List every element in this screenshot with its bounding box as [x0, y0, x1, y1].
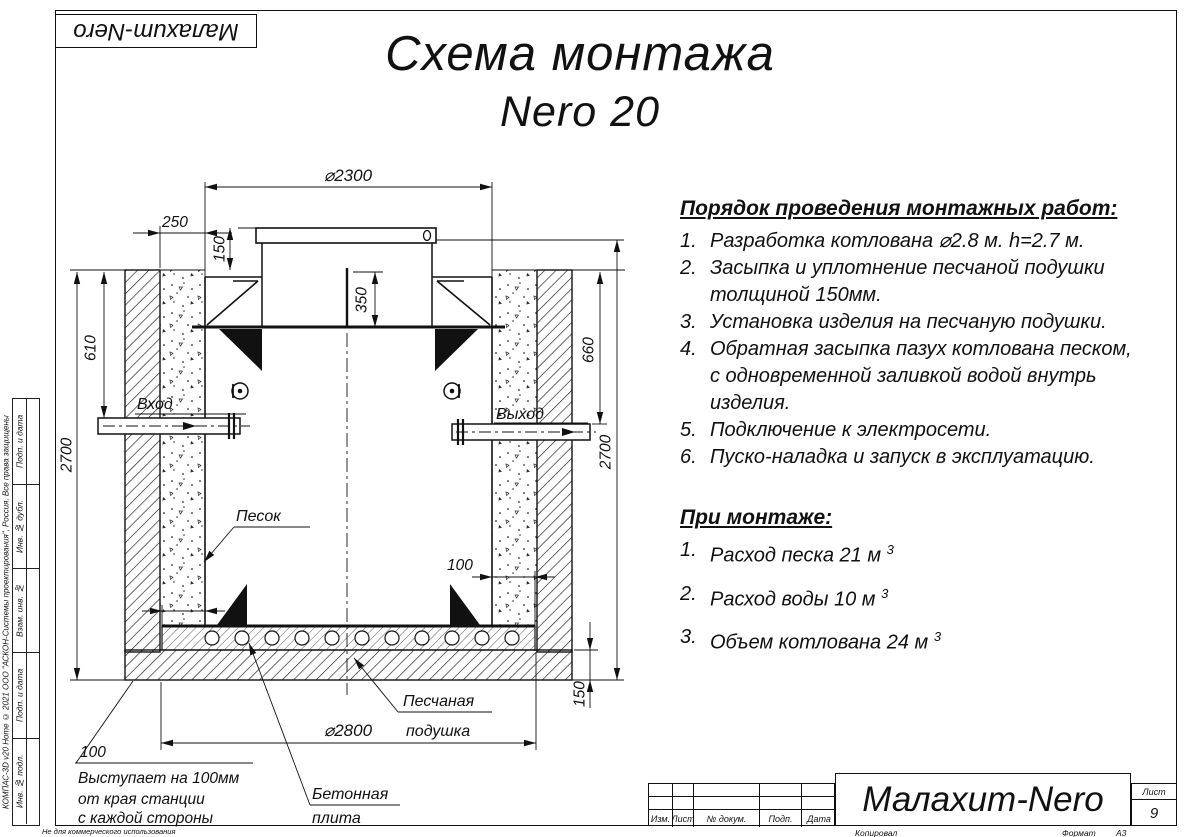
stamp-cell-label: Инв. № дубл.: [13, 485, 26, 568]
dim-350: 350: [353, 287, 370, 313]
item-number: 5.: [680, 417, 697, 444]
format-label: Формат: [1062, 828, 1096, 837]
dim-250: 250: [161, 214, 188, 231]
sheet-label: Лист: [1132, 784, 1176, 800]
item-text: Подключение к электросети.: [710, 419, 991, 441]
instruction-item: 2.Засыпка и уплотнение песчаной подушки …: [680, 255, 1172, 309]
instructions-list: 1.Разработка котлована ⌀2.8 м. h=2.7 м. …: [680, 228, 1172, 471]
tb-header-podp: Подп.: [760, 809, 802, 827]
instruction-item: 5.Подключение к электросети.: [680, 417, 1172, 444]
dim-2700-right: 2700: [597, 434, 614, 470]
stamp-cell-label: Подп. и дата: [13, 653, 26, 738]
stamp-cell-label: Взам. инв. №: [13, 569, 26, 652]
copyright-vertical: КОМПАС-3D v20 Home © 2021 ООО "АСКОН-Сис…: [0, 392, 12, 832]
overhang-note-1: Выступает на 100мм: [78, 770, 240, 787]
copied-label: Копировал: [855, 828, 897, 837]
item-number: 4.: [680, 336, 697, 363]
concrete-plate-label-2: плита: [312, 810, 361, 827]
item-number: 3.: [680, 309, 697, 336]
item-number: 3.: [680, 624, 697, 650]
montage-item: 3.Объем котлована 24 м 3: [680, 624, 1172, 656]
dim-2300: ⌀2300: [324, 166, 373, 185]
item-number: 1.: [680, 537, 697, 563]
tb-header-docnum: № докум.: [694, 809, 760, 827]
dim-150-lid: 150: [211, 236, 228, 262]
sand-backfill: [160, 270, 537, 626]
sand-cushion-label-2: подушка: [406, 723, 470, 740]
format-value: A3: [1116, 828, 1126, 837]
item-number: 6.: [680, 444, 697, 471]
item-number: 2.: [680, 581, 697, 607]
stamp-cell: Инв. № дубл.: [13, 485, 39, 569]
item-text: Объем котлована 24 м: [710, 632, 928, 654]
page-title: Схема монтажа: [330, 26, 830, 82]
overhang-note-2: от края станции: [78, 791, 205, 808]
instruction-item: 3.Установка изделия на песчаную подушки.: [680, 309, 1172, 336]
sand-label: Песок: [236, 508, 282, 525]
overhang-note-3: с каждой стороны: [78, 810, 214, 827]
sheet-number: 9: [1132, 800, 1176, 826]
item-text: Пуско-наладка и запуск в эксплуатацию.: [710, 446, 1095, 468]
stamp-cell: Инв. № подл.: [13, 739, 39, 824]
outlet-label: Выход: [496, 406, 544, 423]
dim-660: 660: [580, 337, 597, 363]
stamp-cell-label-col: Подп. и дата: [13, 653, 27, 738]
top-gussets: [207, 281, 490, 325]
montage-list: 1.Расход песка 21 м 3 2.Расход воды 10 м…: [680, 537, 1172, 656]
page-subtitle: Nero 20: [330, 88, 830, 137]
item-superscript: 3: [881, 586, 888, 601]
montage-heading: При монтаже:: [680, 506, 1172, 530]
titleblock-product-name: Малахит-Nero: [835, 773, 1131, 826]
instruction-item: 6.Пуско-наладка и запуск в эксплуатацию.: [680, 444, 1172, 471]
stamp-cell: Взам. инв. №: [13, 569, 39, 653]
item-text: Расход воды 10 м: [710, 588, 876, 610]
item-number: 2.: [680, 255, 697, 282]
stamp-cell-label: Подп. и дата: [13, 399, 26, 484]
item-superscript: 3: [887, 542, 894, 557]
item-text: Разработка котлована ⌀2.8 м. h=2.7 м.: [710, 230, 1084, 252]
stamp-cell: Подп. и дата: [13, 653, 39, 739]
stamp-cell: Подп. и дата: [13, 399, 39, 485]
stamp-cell-label-col: Инв. № дубл.: [13, 485, 27, 568]
concrete-plate-label-1: Бетонная: [312, 786, 389, 803]
tb-header-data: Дата: [802, 809, 836, 827]
instruction-item: 4.Обратная засыпка пазух котлована песко…: [680, 336, 1172, 417]
instructions-heading: Порядок проведения монтажных работ:: [680, 197, 1172, 221]
item-number: 1.: [680, 228, 697, 255]
stamp-cell-label-col: Взам. инв. №: [13, 569, 27, 652]
item-text: Обратная засыпка пазух котлована песком,…: [710, 338, 1132, 414]
montage-item: 1.Расход песка 21 м 3: [680, 537, 1172, 569]
montage-item: 2.Расход воды 10 м 3: [680, 581, 1172, 613]
sand-cushion: [125, 650, 572, 680]
drawing-sheet: ⌀2300 250 150 350 610 2700 660 2700 ⌀280…: [0, 0, 1185, 837]
item-text: Установка изделия на песчаную подушки.: [710, 311, 1107, 333]
tank-lid: [256, 228, 436, 243]
dim-610: 610: [82, 335, 99, 361]
item-text: Расход песка 21 м: [710, 545, 881, 567]
instruction-item: 1.Разработка котлована ⌀2.8 м. h=2.7 м.: [680, 228, 1172, 255]
instructions-block: Порядок проведения монтажных работ: 1.Ра…: [680, 197, 1172, 471]
non-commercial-note: Не для коммерческого использования: [42, 827, 175, 836]
overhang-value: 100: [80, 744, 106, 761]
item-superscript: 3: [934, 629, 941, 644]
titleblock-revision-table: Изм. Лист № докум. Подп. Дата: [648, 783, 835, 826]
inlet-label: Вход: [137, 396, 173, 413]
dim-100-right: 100: [447, 557, 473, 574]
stamp-cell-label: Инв. № подл.: [13, 739, 26, 824]
stamp-cell-label-col: Инв. № подл.: [13, 739, 27, 824]
support-brackets: [217, 329, 480, 625]
brand-stamp-text: Малахит-Nero: [56, 15, 256, 47]
left-stamp-strip: Подп. и дата Инв. № дубл. Взам. инв. № П…: [12, 398, 40, 826]
tb-header-list: Лист: [673, 809, 694, 827]
montage-block: При монтаже: 1.Расход песка 21 м 3 2.Рас…: [680, 506, 1172, 668]
item-text: Засыпка и уплотнение песчаной подушки то…: [710, 257, 1105, 306]
dim-150-cushion: 150: [571, 681, 588, 707]
sand-cushion-label-1: Песчаная: [403, 693, 475, 710]
station-tank: [162, 228, 535, 695]
dim-2700-left: 2700: [58, 437, 75, 473]
stamp-cell-label-col: Подп. и дата: [13, 399, 27, 484]
brand-stamp-flipped: Малахит-Nero: [55, 14, 257, 48]
pipe-socket-symbols: [232, 383, 460, 399]
tb-header-izm: Изм.: [649, 809, 673, 827]
dim-2800: ⌀2800: [324, 721, 373, 740]
titleblock-sheet-cell: Лист 9: [1131, 783, 1177, 826]
concrete-plate: [162, 626, 535, 650]
